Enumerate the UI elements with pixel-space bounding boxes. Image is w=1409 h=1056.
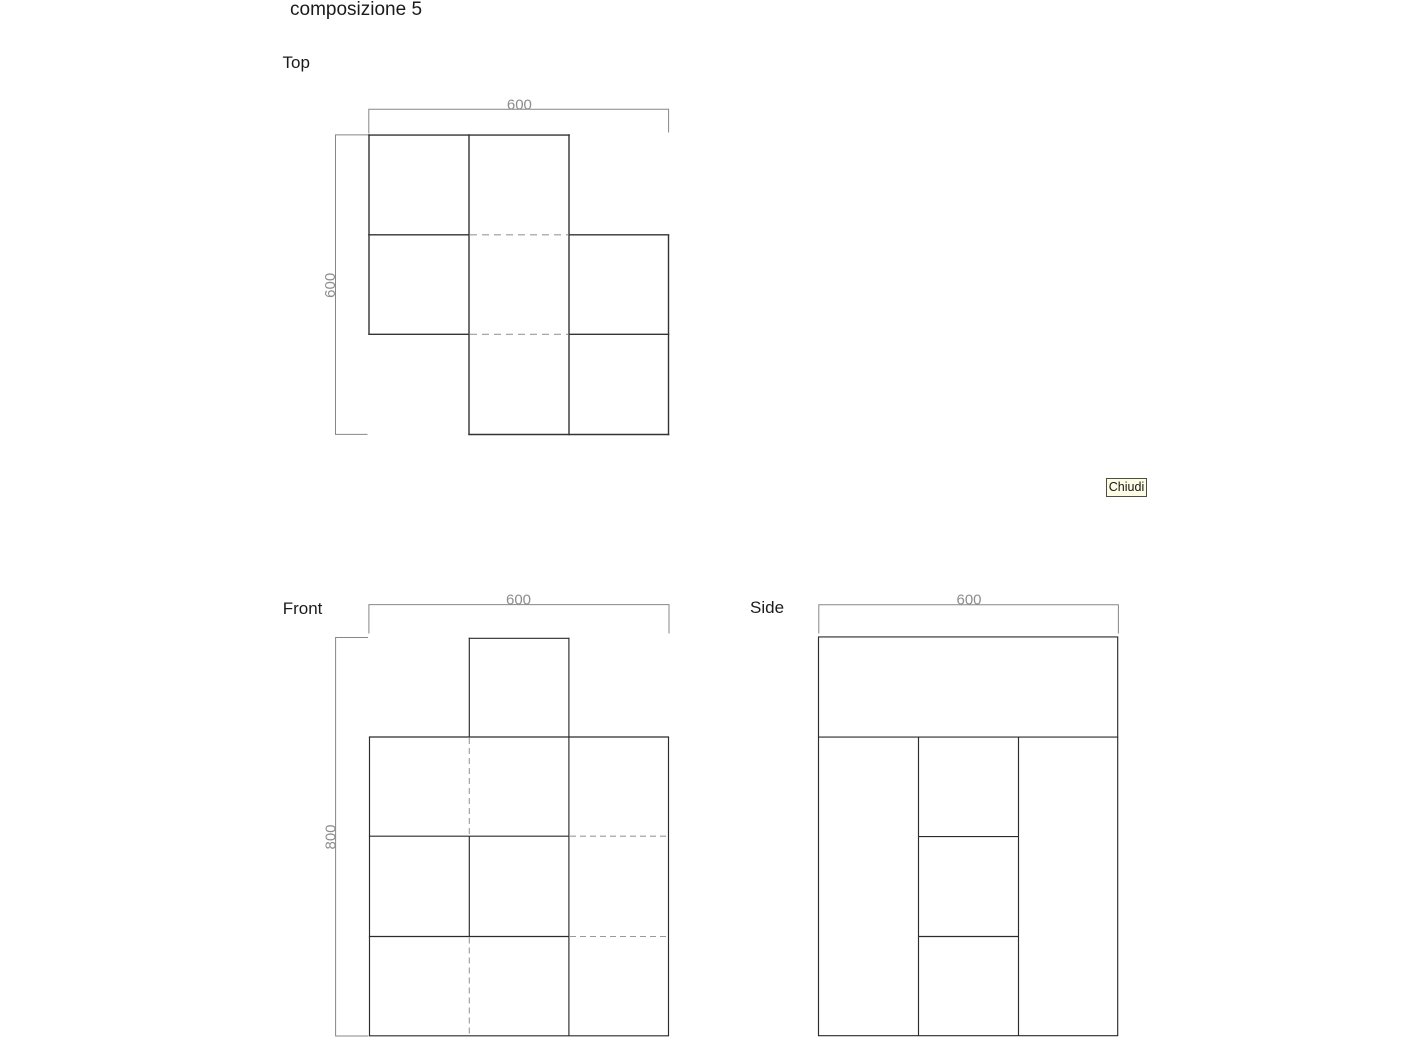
svg-text:Top: Top: [283, 53, 310, 72]
svg-text:600: 600: [322, 273, 339, 298]
svg-text:600: 600: [506, 592, 531, 609]
svg-text:600: 600: [507, 96, 532, 113]
svg-text:600: 600: [956, 592, 981, 609]
svg-text:800: 800: [322, 824, 339, 849]
svg-text:Front: Front: [283, 599, 323, 618]
svg-text:Side: Side: [750, 598, 784, 617]
svg-text:composizione 5: composizione 5: [290, 0, 422, 20]
